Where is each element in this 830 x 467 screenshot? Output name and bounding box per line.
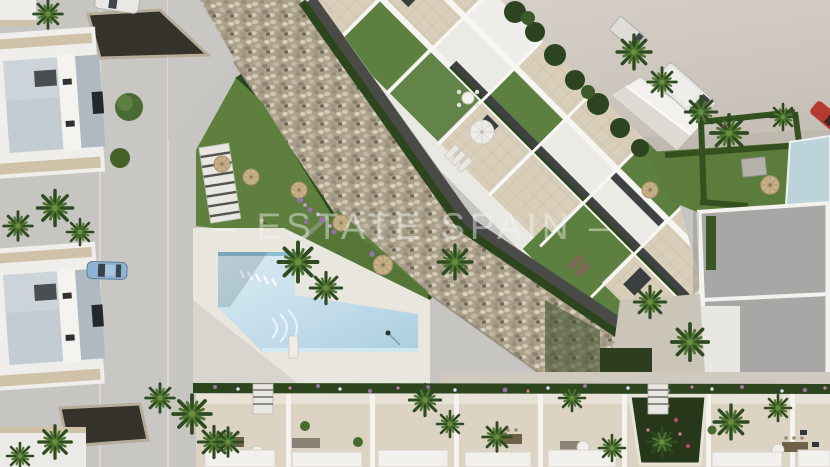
palm-tree (4, 212, 33, 241)
palm-tree (634, 286, 665, 317)
palm-tree (34, 0, 63, 28)
palm-tree (39, 426, 72, 459)
palm-tree (310, 272, 341, 303)
render-canvas (0, 0, 830, 467)
palm-tree (648, 68, 677, 97)
palm-tree (214, 428, 243, 457)
parasol (243, 169, 259, 185)
parasol (761, 176, 779, 194)
palm-tree (559, 385, 585, 411)
palm-tree (711, 115, 747, 151)
aerial-render-scene: – ESTATE SPAIN – (0, 0, 830, 467)
palm-tree (37, 190, 72, 225)
palm-tree (7, 443, 33, 467)
parasol (214, 156, 230, 172)
palm-tree (146, 384, 175, 413)
parasol (373, 255, 392, 274)
parasol (291, 182, 307, 198)
palm-tree (67, 219, 93, 245)
palm-tree (765, 395, 791, 421)
palm-tree (714, 405, 748, 439)
blue-car (87, 261, 128, 279)
white-parasol (470, 120, 494, 144)
palm-tree (685, 96, 716, 127)
palm-tree (409, 384, 440, 415)
palm-tree (770, 104, 796, 130)
palm-tree (279, 243, 318, 282)
palm-tree (648, 428, 677, 457)
parasol (333, 215, 349, 231)
palm-tree (617, 35, 651, 69)
palm-tree (672, 324, 708, 360)
parasol (642, 182, 658, 198)
palm-tree (483, 423, 512, 452)
palm-tree (438, 245, 472, 279)
palm-tree (437, 411, 463, 437)
palm-tree (599, 435, 625, 461)
palm-tree (173, 395, 211, 433)
